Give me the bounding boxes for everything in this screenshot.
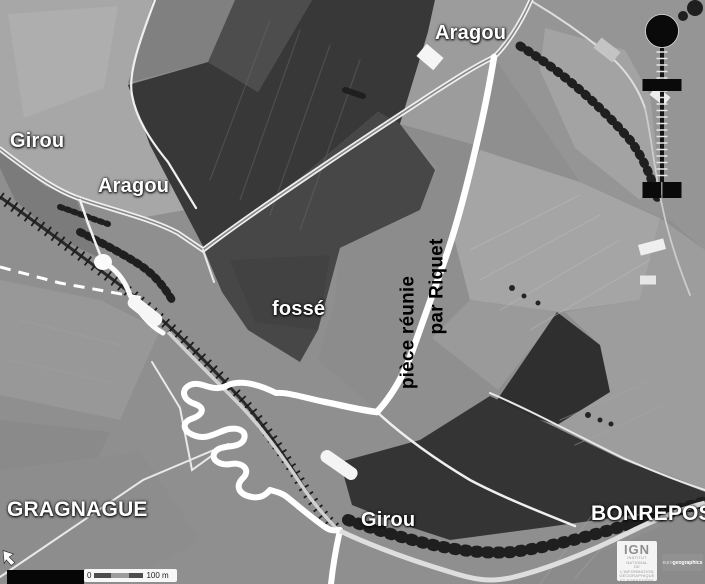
aerial-map-figure: Aragou Girou Aragou fossé pièce réunie p… xyxy=(0,0,705,584)
scale-bar: 0 100 m xyxy=(84,569,177,582)
eurogeographics-logo[interactable]: eurogeographics xyxy=(662,554,703,571)
eurogeographics-suffix: geographics xyxy=(673,560,703,566)
bar-marker xyxy=(643,79,682,91)
ign-line-4: ET FORESTIÈRE xyxy=(617,579,657,581)
square-marker-left xyxy=(643,182,662,198)
scale-distance: 100 m xyxy=(146,571,168,580)
label-fosse: fossé xyxy=(272,299,325,319)
ign-logo[interactable]: IGN INSTITUT NATIONAL DE L'INFORMATION G… xyxy=(617,541,657,581)
label-gragnague: GRAGNAGUE xyxy=(7,499,148,520)
black-strip xyxy=(7,570,84,584)
circle-marker xyxy=(646,15,679,48)
farm-building xyxy=(640,276,656,285)
square-marker-right xyxy=(663,182,682,198)
label-girou-upper: Girou xyxy=(10,131,64,151)
label-par-riquet: par Riquet xyxy=(428,235,447,339)
label-bonrepos: BONREPOS xyxy=(591,503,705,524)
label-piece-reunie: pièce réunie xyxy=(399,273,418,393)
scale-segments xyxy=(94,573,143,578)
label-girou-lower: Girou xyxy=(361,510,415,530)
map-canvas[interactable] xyxy=(0,0,705,584)
scale-zero: 0 xyxy=(87,571,91,580)
label-aragou-left: Aragou xyxy=(98,176,169,196)
label-aragou-top: Aragou xyxy=(435,23,506,43)
eurogeographics-prefix: euro xyxy=(663,560,673,566)
